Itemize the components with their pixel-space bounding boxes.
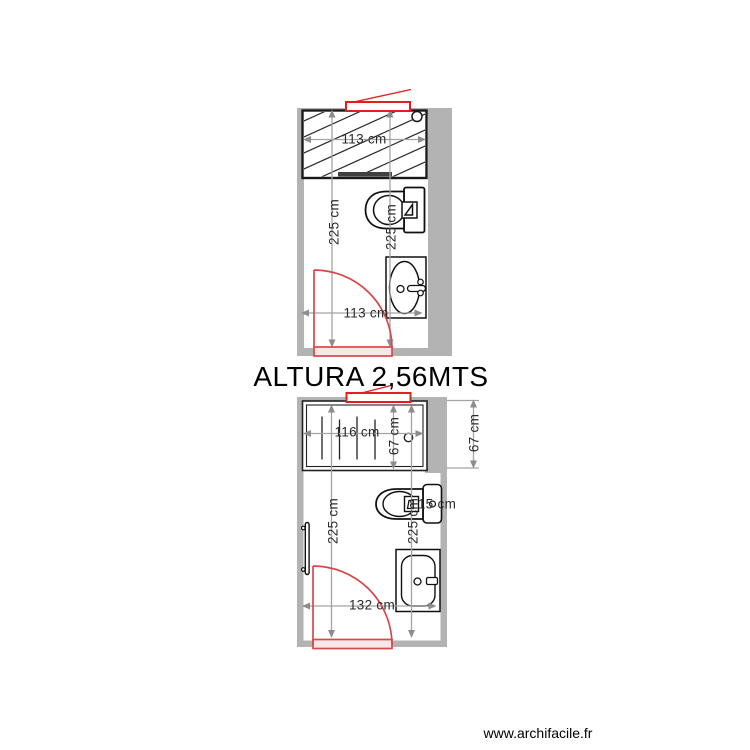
sink-icon [386,257,426,318]
shower-screen [338,172,392,177]
dim-label-bottom-shower-width: 116 cm [334,425,379,440]
dim-label-bottom-exterior-wall: 67 cm [467,414,482,452]
dim-label-top-depth-left: 225 cm [327,199,342,245]
drain-icon [412,112,422,122]
dim-label-bottom-depth-left: 225 cm [326,498,341,544]
sink-icon [396,550,440,612]
dim-label-bottom-door-width: 132 cm [349,598,395,613]
dim-label-top-shower-width: 113 cm [341,132,386,147]
dim-label-bottom-toilet-gap: 15 cm [418,497,456,512]
dim-label-bottom-shower-depth: 67 cm [387,417,402,455]
dim-label-top-depth-right: 225 cm [384,204,399,250]
dim-label-top-door-width: 113 cm [343,306,388,321]
website-footer: www.archifacile.fr [484,725,593,741]
window-icon [346,90,411,112]
height-annotation: ALTURA 2,56MTS [253,361,488,393]
floor-plan-canvas: 113 cm 225 cm 225 cm 113 cm ALTURA 2,56M… [0,0,750,750]
